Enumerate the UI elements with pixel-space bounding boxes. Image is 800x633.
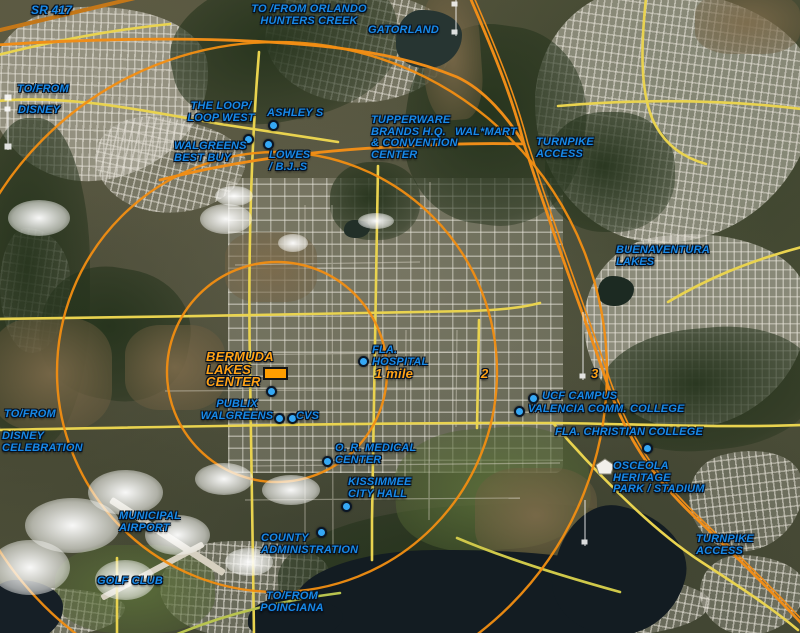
- label-disney-celebration: DISNEY CELEBRATION: [2, 431, 83, 454]
- road-turnpike: [469, 0, 800, 624]
- cloud: [262, 475, 320, 505]
- label-orlando-hunters-creek: TO /FROM ORLANDO HUNTERS CREEK: [244, 4, 374, 27]
- cloud: [215, 186, 253, 206]
- label-sr417: SR 417: [31, 5, 72, 17]
- cloud: [278, 234, 308, 252]
- stadium-icon: [596, 459, 614, 474]
- poi-dot-or-medical-center: [322, 456, 333, 467]
- label-tupperware: TUPPERWARE BRANDS H.Q. & CONVENTION CENT…: [371, 115, 458, 161]
- label-municipal-airport: MUNICIPAL AIRPORT: [119, 511, 181, 534]
- label-lowes-bjs: LOWES / B.J..S: [269, 150, 310, 173]
- poi-dot-kissimmee-city-hall: [341, 501, 352, 512]
- yellow-roads: [0, 0, 800, 633]
- roads-and-rings-overlay: [0, 0, 800, 633]
- poi-dot-ucf-campus: [528, 393, 539, 404]
- label-walgreens-bestbuy: WALGREENS BEST BUY: [174, 141, 247, 164]
- cloud: [358, 213, 394, 229]
- label-poinciana: TO/FROM POINCIANA: [257, 591, 327, 614]
- label-or-medical: O. R. MEDICAL CENTER: [335, 443, 416, 466]
- label-county-admin: COUNTY ADMINISTRATION: [261, 533, 358, 556]
- label-fla-hospital: FLA. HOSPITAL: [372, 345, 428, 368]
- label-fla-christian: FLA. CHRISTIAN COLLEGE: [555, 427, 703, 439]
- label-cvs: CVS: [296, 411, 319, 423]
- label-kissimmee-city-hall: KISSIMMEE CITY HALL: [348, 477, 412, 500]
- label-bermuda-lakes-center: BERMUDA LAKES CENTER: [206, 351, 274, 389]
- label-buenaventura-lakes: BUENAVENTURA LAKES: [616, 245, 710, 268]
- label-tofrom-disney-2: TO/FROM: [4, 409, 56, 421]
- label-tofrom-disney: TO/FROM: [17, 84, 69, 96]
- label-disney: DISNEY: [18, 105, 60, 117]
- label-golf-club: GOLF CLUB: [97, 576, 163, 588]
- label-publix-walgreens: PUBLIX WALGREENS: [198, 399, 276, 422]
- poi-dot-fla-hospital: [358, 356, 369, 367]
- poi-dot-lowes-bjs: [263, 139, 274, 150]
- cloud: [200, 204, 252, 234]
- label-gatorland: GATORLAND: [368, 25, 439, 37]
- label-ucf-campus: UCF CAMPUS: [542, 391, 617, 403]
- label-ashleys: ASHLEY S: [267, 108, 323, 120]
- label-turnpike-access-north: TURNPIKE ACCESS: [536, 137, 594, 160]
- label-turnpike-access-south: TURNPIKE ACCESS: [696, 534, 754, 557]
- road-turnpike-2: [473, 0, 800, 624]
- road-sr417: [0, 0, 152, 31]
- poi-dot-valencia-comm-college: [514, 406, 525, 417]
- label-osceola-heritage: OSCEOLA HERITAGE PARK / STADIUM: [613, 461, 705, 496]
- cloud: [8, 200, 70, 236]
- poi-dot-fla-christian-college: [642, 443, 653, 454]
- label-ring-2: 2: [481, 368, 488, 381]
- poi-dot-ashleys: [268, 120, 279, 131]
- cloud: [195, 463, 253, 495]
- label-ring-1-mile: 1 mile: [375, 368, 413, 381]
- label-valencia: VALENCIA COMM. COLLEGE: [528, 404, 685, 416]
- map-canvas[interactable]: SR 417 TO /FROM ORLANDO HUNTERS CREEK GA…: [0, 0, 800, 633]
- label-ring-3: 3: [591, 368, 598, 381]
- label-walmart: WAL*MART: [455, 127, 517, 139]
- label-the-loop: THE LOOP/ LOOP WEST: [182, 101, 260, 124]
